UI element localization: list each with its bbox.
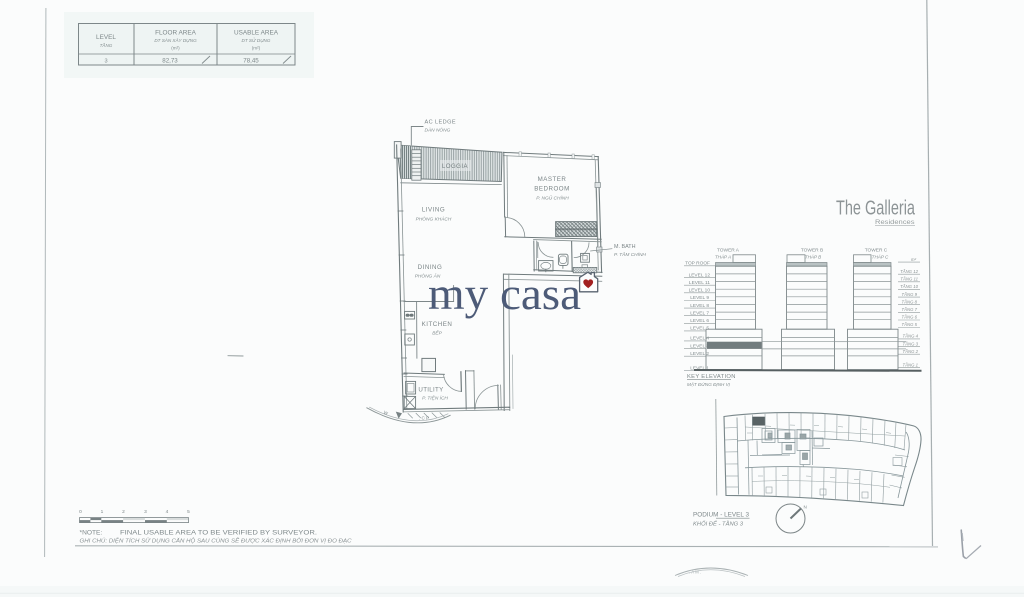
svg-text:3: 3 (144, 509, 147, 515)
svg-text:my casa: my casa (428, 268, 581, 319)
svg-text:TẦNG 4: TẦNG 4 (902, 334, 918, 339)
svg-text:. C P .: . C P . (419, 416, 432, 421)
svg-text:KITCHEN: KITCHEN (422, 321, 453, 328)
svg-text:N: N (804, 505, 807, 510)
svg-text:TẦNG 11: TẦNG 11 (900, 277, 918, 282)
svg-text:THÁP B: THÁP B (805, 253, 821, 259)
svg-text:UTILITY: UTILITY (418, 387, 443, 394)
svg-text:PODIUM - LEVEL 3: PODIUM - LEVEL 3 (693, 512, 750, 519)
svg-text:TẦNG 10: TẦNG 10 (900, 284, 919, 289)
svg-text:1: 1 (101, 509, 104, 515)
svg-text:TOWER B: TOWER B (801, 248, 823, 254)
svg-text:TẦNG 8: TẦNG 8 (901, 299, 917, 304)
svg-text:3: 3 (104, 59, 107, 65)
svg-text:TẦNG 5: TẦNG 5 (901, 322, 917, 327)
svg-text:KHỐI ĐẾ - TẦNG 3: KHỐI ĐẾ - TẦNG 3 (693, 520, 743, 528)
svg-text:TẦNG 1: TẦNG 1 (902, 362, 918, 367)
svg-text:BEDROOM: BEDROOM (534, 186, 569, 193)
svg-text:TẦNG: TẦNG (100, 42, 113, 48)
svg-text:DÀN NÓNG: DÀN NÓNG (425, 127, 451, 134)
svg-text:. A M .: . A M . (689, 570, 701, 575)
svg-text:MASTER: MASTER (538, 176, 567, 183)
svg-text:DT SỬ DỤNG: DT SỬ DỤNG (242, 37, 271, 43)
svg-text:LIVING: LIVING (422, 207, 445, 214)
svg-text:USABLE AREA: USABLE AREA (234, 30, 279, 37)
svg-text:TOWER A: TOWER A (717, 248, 740, 254)
svg-text:(m²): (m²) (252, 46, 261, 51)
svg-text:MẶT ĐỨNG ĐỊNH VỊ: MẶT ĐỨNG ĐỊNH VỊ (687, 381, 731, 387)
svg-text:P. NGỦ CHÍNH: P. NGỦ CHÍNH (536, 195, 569, 202)
svg-text:TẦNG 7: TẦNG 7 (901, 307, 917, 312)
svg-text:The Galleria: The Galleria (836, 198, 916, 220)
svg-text:TẦNG 2: TẦNG 2 (902, 349, 918, 354)
svg-text:GHI CHÚ: DIỆN TÍCH SỬ DỤNG CĂ: GHI CHÚ: DIỆN TÍCH SỬ DỤNG CĂN HỘ SAU CÙ… (80, 537, 352, 545)
svg-text:Residences: Residences (875, 219, 915, 226)
svg-text:5: 5 (187, 509, 190, 515)
svg-text:THÁP A: THÁP A (715, 253, 731, 259)
svg-text:2: 2 (122, 509, 125, 515)
svg-text:KEY ELEVATION: KEY ELEVATION (687, 374, 736, 380)
svg-text:FINAL USABLE AREA TO BE VERIFI: FINAL USABLE AREA TO BE VERIFIED BY SURV… (120, 530, 317, 537)
svg-text:m²: m² (911, 257, 917, 262)
svg-text:0: 0 (79, 509, 82, 515)
svg-text:TẦNG 9: TẦNG 9 (901, 292, 917, 297)
svg-text:THÁP C: THÁP C (872, 253, 889, 259)
svg-text:82,73: 82,73 (162, 58, 178, 65)
svg-text:78,45: 78,45 (243, 58, 259, 65)
svg-text:AC LEDGE: AC LEDGE (425, 120, 457, 126)
svg-text:PHÒNG KHÁCH: PHÒNG KHÁCH (416, 216, 452, 223)
svg-text:LEVEL: LEVEL (96, 34, 116, 41)
svg-text:*NOTE:: *NOTE: (80, 530, 103, 537)
svg-text:(m²): (m²) (171, 46, 180, 51)
svg-text:FLOOR AREA: FLOOR AREA (155, 30, 197, 37)
svg-text:LOGGIA: LOGGIA (442, 164, 468, 170)
svg-text:TOWER C: TOWER C (865, 248, 888, 254)
svg-text:4: 4 (166, 509, 169, 515)
svg-text:TẦNG 6: TẦNG 6 (901, 315, 917, 320)
svg-text:M. BATH: M. BATH (614, 244, 636, 250)
svg-text:TẦNG 12: TẦNG 12 (900, 269, 919, 274)
svg-text:DT SÀN XÂY DỰNG: DT SÀN XÂY DỰNG (154, 37, 197, 43)
